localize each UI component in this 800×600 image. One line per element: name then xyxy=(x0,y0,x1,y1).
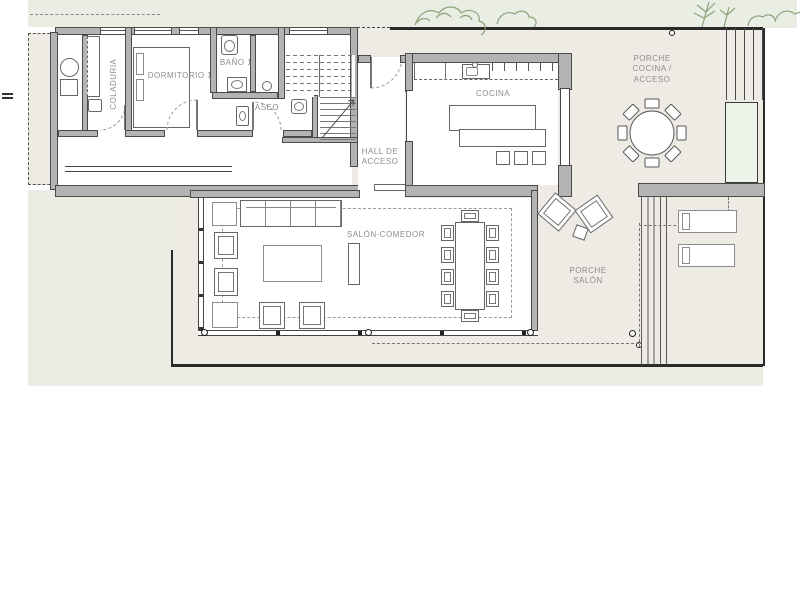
terrace-edge-left xyxy=(171,250,173,366)
dining-chair xyxy=(441,225,454,241)
pillow xyxy=(136,79,144,101)
dining-chair xyxy=(486,291,499,307)
window xyxy=(134,28,172,34)
shower-drain xyxy=(262,81,272,91)
dining-chair xyxy=(441,269,454,285)
garden-wall-top xyxy=(390,27,763,30)
kitchen-wall-east xyxy=(558,53,572,90)
wall xyxy=(212,92,278,99)
stair-divider xyxy=(319,55,320,97)
stool xyxy=(532,151,546,165)
overhang-dashed xyxy=(639,223,640,347)
sink-bowl xyxy=(466,67,478,76)
floor-plan: COLADURIA DORMITORIO 1 BAÑO 1 ASEO HALL … xyxy=(0,0,800,600)
dining-chair xyxy=(461,310,479,322)
dining-chair xyxy=(486,247,499,263)
corridor-glazing xyxy=(65,166,232,172)
wall xyxy=(278,27,285,99)
wall xyxy=(197,130,253,137)
kitchen-wall-west xyxy=(405,141,413,190)
stair-flight-up xyxy=(286,55,319,97)
planter xyxy=(725,102,758,183)
terrace-edge-bottom xyxy=(171,364,763,367)
wall-west xyxy=(50,32,58,190)
garden-bottom-strip xyxy=(171,366,763,386)
washing-machine xyxy=(60,58,79,77)
room-label-dormitorio: DORMITORIO 1 xyxy=(146,71,214,81)
room-label-coladuria: COLADURIA xyxy=(109,54,119,114)
wall xyxy=(283,130,312,137)
lounger-pillow xyxy=(682,247,690,264)
column xyxy=(629,330,636,337)
room-label-porche-cocina: PORCHE COCINA / ACCESO xyxy=(621,54,683,85)
dining-chair xyxy=(461,210,479,222)
toilet-bowl xyxy=(294,102,304,111)
salon-wall-north xyxy=(405,185,538,197)
section-mark xyxy=(2,97,13,99)
dining-chair xyxy=(441,291,454,307)
laundry-cabinet xyxy=(87,36,100,97)
kitchen-wall-west xyxy=(405,53,413,92)
dining-chair xyxy=(486,269,499,285)
stair-flight-up xyxy=(320,55,355,97)
counter-ticks xyxy=(492,63,556,71)
kitchen-east-glazing xyxy=(560,88,570,167)
room-label-bano: BAÑO 1 xyxy=(216,58,256,68)
pergola-louvers xyxy=(726,28,763,100)
dining-chair xyxy=(441,247,454,263)
wall xyxy=(58,130,98,137)
kitchen-wall-east xyxy=(558,165,572,197)
stool xyxy=(514,151,528,165)
wall-entry xyxy=(358,55,371,63)
salon-west-glazing xyxy=(198,198,204,334)
overhang-dashed xyxy=(372,343,639,344)
sofa xyxy=(240,200,342,227)
kitchen-island-counter xyxy=(459,129,546,147)
kitchen-island xyxy=(449,105,536,131)
window xyxy=(179,28,199,34)
sideboard xyxy=(348,243,360,285)
column xyxy=(669,30,675,36)
dining-chair xyxy=(486,225,499,241)
sink-tap xyxy=(472,62,478,68)
laundry-sink xyxy=(88,99,102,112)
dining-table xyxy=(455,222,485,310)
property-line-top xyxy=(30,14,160,15)
armchair xyxy=(299,302,325,329)
lounger-pillow xyxy=(682,213,690,230)
room-label-porche-salon: PORCHE SALÓN xyxy=(564,266,612,287)
sliding-door xyxy=(374,184,408,191)
hall-floor xyxy=(358,57,405,198)
side-table xyxy=(212,202,237,226)
kitchen-wall-north xyxy=(405,53,572,63)
wall xyxy=(125,130,165,137)
room-label-hall: HALL DE ACCESO xyxy=(354,147,406,168)
laundry-unit xyxy=(60,79,78,96)
sink-basin xyxy=(239,111,246,121)
side-table xyxy=(212,302,238,328)
stool xyxy=(496,151,510,165)
garden-left xyxy=(28,190,171,386)
column xyxy=(527,329,534,336)
window xyxy=(100,28,128,34)
window xyxy=(289,28,328,34)
armchair xyxy=(214,232,238,259)
column xyxy=(201,329,208,336)
toilet-bowl xyxy=(224,40,235,52)
pillow xyxy=(136,53,144,75)
boundary-right xyxy=(763,28,765,366)
section-mark xyxy=(2,93,13,95)
room-label-aseo: ASEO xyxy=(252,103,282,113)
salon-wall-east xyxy=(531,190,538,336)
counter-divider xyxy=(445,63,446,80)
deck-slats xyxy=(641,197,672,365)
coffee-table xyxy=(263,245,322,282)
room-label-cocina: COCINA xyxy=(465,89,521,99)
room-label-salon: SALÓN-COMEDOR xyxy=(338,230,434,240)
wall xyxy=(125,27,132,137)
wall xyxy=(312,95,318,143)
armchair xyxy=(259,302,285,329)
column xyxy=(365,329,372,336)
stair-flight-down xyxy=(320,97,356,142)
sofa-seat-line xyxy=(246,207,336,208)
wall-porch-divider xyxy=(638,183,765,197)
sink-basin xyxy=(231,80,243,89)
garden-band-top-right xyxy=(358,0,797,28)
salon-wall-north xyxy=(190,190,360,198)
armchair xyxy=(214,268,238,296)
